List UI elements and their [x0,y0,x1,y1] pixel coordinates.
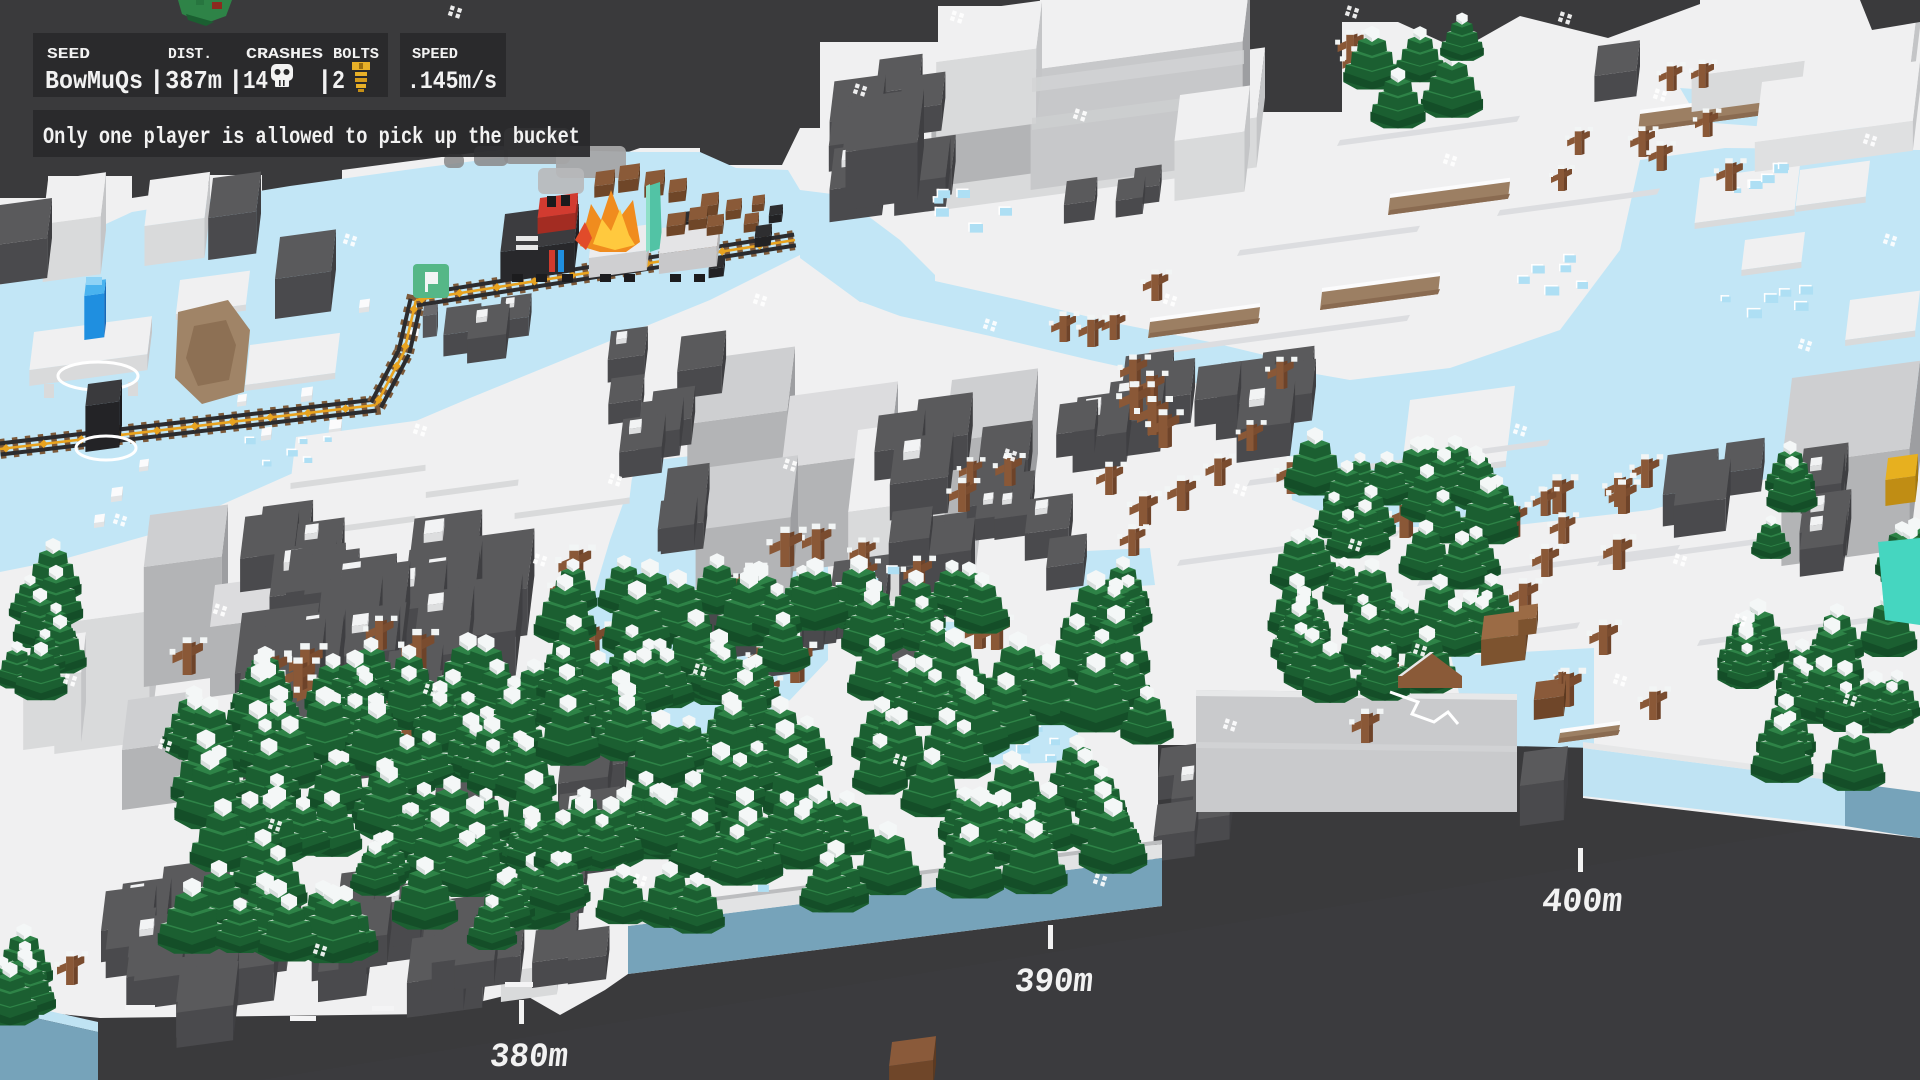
svg-text:|: | [228,66,244,96]
svg-text:SEED: SEED [47,46,90,63]
svg-text:387m: 387m [165,66,222,96]
svg-text:|: | [317,66,333,96]
svg-text:CRASHES: CRASHES [246,46,323,63]
svg-text:BowMuQs: BowMuQs [45,66,143,96]
svg-text:SPEED: SPEED [412,46,458,63]
svg-text:380m: 380m [488,1039,570,1077]
svg-text:400m: 400m [1540,884,1624,922]
svg-text:390m: 390m [1013,964,1095,1002]
svg-text:Only one player is allowed to: Only one player is allowed to pick up th… [43,124,580,150]
svg-text:.145m/s: .145m/s [407,67,497,96]
svg-text:14: 14 [243,66,268,96]
svg-text:DIST.: DIST. [168,46,212,63]
svg-text:2: 2 [332,66,345,96]
svg-text:|: | [149,66,165,96]
svg-text:BOLTS: BOLTS [333,46,379,63]
